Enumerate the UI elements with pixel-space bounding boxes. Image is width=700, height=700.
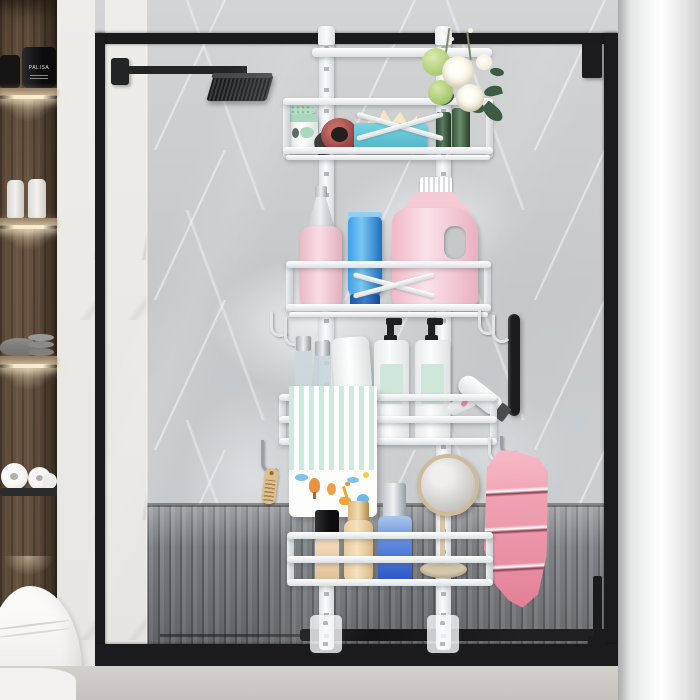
- door-hinge-bracket: [582, 42, 602, 78]
- shower-frame-bottom: [95, 644, 618, 666]
- white-bottle: [7, 180, 24, 218]
- led-glow: [0, 556, 57, 582]
- flower-bud: [468, 28, 473, 33]
- basket-base-rail: [289, 312, 488, 317]
- detergent-cap: [420, 177, 452, 194]
- white-bottle: [28, 179, 46, 218]
- comb-teeth: [263, 479, 275, 501]
- roll-core: [10, 473, 18, 480]
- detergent-handle-hole: [444, 226, 466, 259]
- cartoon-tree-trunk: [313, 492, 316, 499]
- gray-bowl-stack: [28, 341, 54, 348]
- cartoon-sun: [363, 472, 369, 478]
- flower-bud: [442, 30, 447, 35]
- basket-2: [286, 261, 491, 319]
- gold-bottle-cap: [348, 501, 369, 522]
- gray-bowl-stack: [28, 334, 54, 341]
- shower-frame-right: [604, 33, 618, 666]
- basket-bottom-rail: [283, 147, 493, 154]
- cartoon-giraffe-head: [345, 482, 350, 486]
- led-glow: [0, 99, 57, 129]
- flower-bud: [450, 37, 454, 41]
- cartoon-cloud: [295, 474, 308, 481]
- leaf: [480, 100, 505, 124]
- leaf: [489, 67, 504, 77]
- shower-frame-top: [95, 33, 618, 44]
- right-wall-column: [618, 0, 700, 700]
- flower-stem: [466, 32, 471, 60]
- basket-top-rail: [286, 261, 491, 268]
- vanity-mirror: [417, 454, 479, 516]
- gray-bowl-stack: [28, 348, 54, 356]
- black-jar: [0, 55, 20, 88]
- s-hook: [492, 315, 512, 343]
- caddy-over-door-hook-left: [318, 26, 335, 45]
- basket-bottom-rail: [286, 304, 491, 311]
- white-rose: [476, 54, 492, 70]
- towel-striped-section: [289, 386, 377, 470]
- toilet-base: [0, 668, 76, 700]
- cartoon-tree: [327, 483, 336, 495]
- basket-top-rail: [287, 532, 493, 539]
- basket-bottom-rail: [287, 579, 493, 586]
- comb-hole: [269, 471, 273, 475]
- perfume-cap: [296, 336, 311, 351]
- caddy-foot-left: [310, 615, 342, 653]
- bathroom-floor: [0, 666, 618, 700]
- shower-frame-left: [95, 33, 105, 666]
- cartoon-tree: [309, 478, 320, 493]
- cabinet-shelf-dark: [0, 488, 57, 496]
- pink-spray-bottle-cap: [315, 186, 327, 198]
- basket-4: [287, 532, 493, 588]
- flower-bouquet: [410, 28, 510, 123]
- white-rose: [456, 84, 484, 112]
- striped-towel: [289, 386, 377, 517]
- blue-serum-cap: [383, 483, 406, 518]
- toilet-lid-seam: [0, 627, 70, 638]
- led-glow: [0, 368, 57, 398]
- perfume-cap: [315, 341, 330, 356]
- door-bottom-guide-base: [588, 636, 606, 645]
- basket-mid-rail: [287, 556, 493, 563]
- door-bottom-guide: [593, 576, 602, 644]
- jar-label-lines: [30, 74, 48, 79]
- bathroom-scene: PALISA: [0, 0, 700, 700]
- jar-label: PALISA: [22, 65, 56, 72]
- led-glow: [0, 229, 57, 257]
- basket-base-rail: [286, 155, 490, 160]
- foot-slots: [440, 621, 445, 647]
- marble-wall-strip: [57, 0, 95, 700]
- leaf: [483, 84, 503, 98]
- toilet-paper-roll: [42, 473, 57, 489]
- caddy-foot-right: [427, 615, 459, 653]
- black-jar: PALISA: [22, 47, 56, 88]
- foot-slots: [323, 621, 328, 647]
- toilet-paper-roll: [1, 463, 28, 490]
